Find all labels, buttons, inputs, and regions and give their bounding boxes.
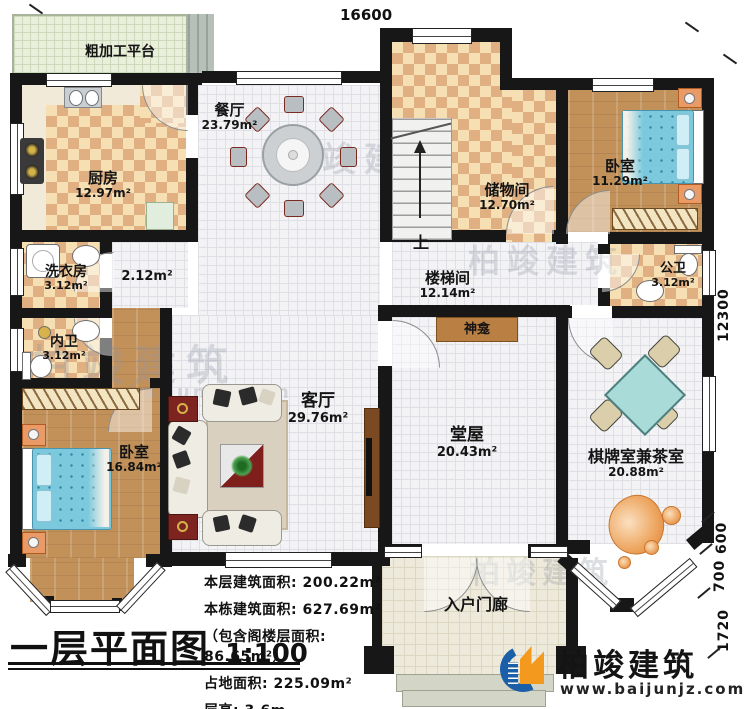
stat-land-area: 占地面积: 225.09m² (204, 673, 394, 693)
room-area: 3.12m² (24, 280, 108, 293)
dimension-top-width: 16600 (340, 6, 392, 24)
room-label-kitchen: 厨房12.97m² (58, 170, 148, 201)
stair-arrow-head (414, 140, 426, 153)
kitchen-sink-basin (85, 90, 99, 106)
room-name: 粗加工平台 (55, 44, 185, 60)
stat-floor-height: 层高: 3.6m (204, 700, 394, 709)
wall (380, 42, 392, 242)
pillow (676, 148, 690, 180)
room-name: 入户门廊 (420, 596, 532, 614)
room-area: 20.43m² (424, 446, 510, 461)
shrine: 神龛 (436, 317, 518, 342)
room-label-corridor: 2.12m² (116, 270, 178, 285)
room-area: 11.29m² (578, 175, 662, 189)
room-area: 2.12m² (116, 270, 178, 285)
pillow (36, 490, 52, 522)
room-name: 储物间 (458, 182, 556, 199)
window (384, 546, 422, 558)
side-table-decor (177, 403, 188, 414)
fridge (146, 202, 174, 230)
room-name: 卧室 (578, 158, 662, 175)
dining-table-center (288, 150, 298, 160)
tv (366, 438, 372, 496)
room-area: 12.14m² (400, 287, 495, 301)
window (530, 546, 568, 558)
room-area: 12.97m² (58, 187, 148, 201)
bay-wall-stub (8, 554, 26, 567)
room-label-porch: 入户门廊 (420, 596, 532, 614)
room-label-laundry: 洗衣房3.12m² (24, 264, 108, 293)
wardrobe (22, 388, 140, 410)
room-area: 3.12m² (32, 350, 96, 363)
floor-plan-canvas: 柏竣建筑 柏竣建筑 柏竣建筑 www.baijunjz.com 柏竣建筑 (0, 0, 750, 709)
dining-chair (230, 147, 247, 167)
window (46, 73, 112, 87)
dimension-tick (723, 54, 737, 65)
room-name: 餐厅 (182, 102, 277, 119)
dining-chair (284, 96, 304, 113)
stairs-up-text: 上 (413, 233, 429, 252)
stat-floor-area: 本层建筑面积: 200.22m² (204, 572, 394, 592)
dimension-tick (685, 22, 699, 33)
wall (378, 305, 570, 317)
bay-window (50, 600, 120, 613)
room-name: 客厅 (268, 392, 368, 412)
dimension-700: 700 (712, 554, 728, 592)
tea-stool (618, 556, 631, 569)
dimension-tick (29, 4, 43, 15)
room-name: 堂屋 (424, 426, 510, 446)
wall (10, 308, 112, 318)
dimension-right-height: 12300 (716, 252, 732, 342)
room-label-bedroom-ne: 卧室11.29m² (578, 158, 662, 189)
pillow (36, 454, 52, 486)
logo-building-blue (508, 662, 518, 684)
stove-burner (25, 165, 39, 179)
room-label-bedroom-sw: 卧室16.84m² (92, 444, 176, 475)
wall (608, 232, 714, 244)
wall (556, 318, 568, 558)
nightstand (22, 424, 46, 446)
room-area: 3.12m² (638, 277, 708, 290)
bedroom-entry-floor (112, 308, 160, 388)
nightstand (22, 532, 46, 554)
logo-website: www.baijunjz.com (560, 680, 745, 698)
company-logo: 柏竣建筑 www.baijunjz.com (500, 640, 746, 704)
sofa-pillow (213, 515, 231, 533)
room-label-chess-tea: 棋牌室兼茶室20.88m² (574, 448, 698, 480)
kitchen-sink-basin (69, 90, 83, 106)
room-label-dining: 餐厅23.79m² (182, 102, 277, 133)
bay-window (630, 558, 697, 617)
dimension-tick (697, 587, 711, 599)
nightstand (678, 88, 702, 108)
dimension-600: 600 (714, 518, 730, 554)
chimney-column (188, 14, 214, 75)
room-area: 23.79m² (182, 119, 277, 133)
wall (598, 244, 610, 254)
room-area: 16.84m² (92, 461, 176, 475)
wall (556, 90, 568, 242)
dining-chair (340, 147, 357, 167)
room-label-living: 客厅29.76m² (268, 392, 368, 426)
room-area: 20.88m² (574, 466, 698, 480)
room-name: 内卫 (32, 334, 96, 350)
stats-block: 本层建筑面积: 200.22m² 本栋建筑面积: 627.69m² （包含阁楼层… (204, 572, 394, 709)
tea-stool (644, 540, 659, 555)
stat-building-area: 本栋建筑面积: 627.69m² (204, 599, 394, 619)
window (702, 376, 716, 452)
stat-attic-area: （包含阁楼层面积: 86.65m²） (204, 626, 394, 666)
wall (378, 305, 392, 321)
window (10, 248, 24, 296)
room-area: 12.70m² (458, 199, 556, 213)
stair-arrow-line (419, 152, 421, 218)
pillow (676, 114, 690, 146)
room-name: 厨房 (58, 170, 148, 187)
wall (612, 306, 714, 318)
tea-stool (662, 506, 681, 525)
room-label-storage: 储物间12.70m² (458, 182, 556, 213)
room-label-platform: 粗加工平台 (55, 44, 185, 60)
room-name: 洗衣房 (24, 264, 108, 280)
logo-icon (500, 640, 552, 698)
room-name: 卧室 (92, 444, 176, 461)
nightstand (678, 184, 702, 204)
room-name: 公卫 (638, 262, 708, 277)
room-label-main-hall: 堂屋20.43m² (424, 426, 510, 460)
window (225, 552, 332, 568)
room-name: 楼梯间 (400, 270, 495, 287)
room-label-stair-hall: 楼梯间12.14m² (400, 270, 495, 301)
stove-burner (25, 143, 39, 157)
wardrobe (612, 208, 698, 230)
wall (378, 366, 392, 558)
room-name: 棋牌室兼茶室 (574, 448, 698, 466)
dimension-tick (699, 543, 713, 555)
stairs-up-label: 上 (396, 234, 446, 252)
side-table-decor (177, 521, 188, 532)
window (412, 28, 472, 44)
wall (10, 230, 198, 242)
dining-chair (284, 200, 304, 217)
sofa-pillow (213, 389, 232, 408)
room-label-private-bath: 内卫3.12m² (32, 334, 96, 363)
window (236, 71, 342, 85)
room-label-public-bath: 公卫3.12m² (638, 262, 708, 290)
logo-company-name: 柏竣建筑 (558, 640, 698, 685)
plant (231, 455, 253, 477)
window (592, 78, 654, 92)
shrine-label: 神龛 (464, 322, 490, 337)
room-area: 29.76m² (268, 412, 368, 427)
